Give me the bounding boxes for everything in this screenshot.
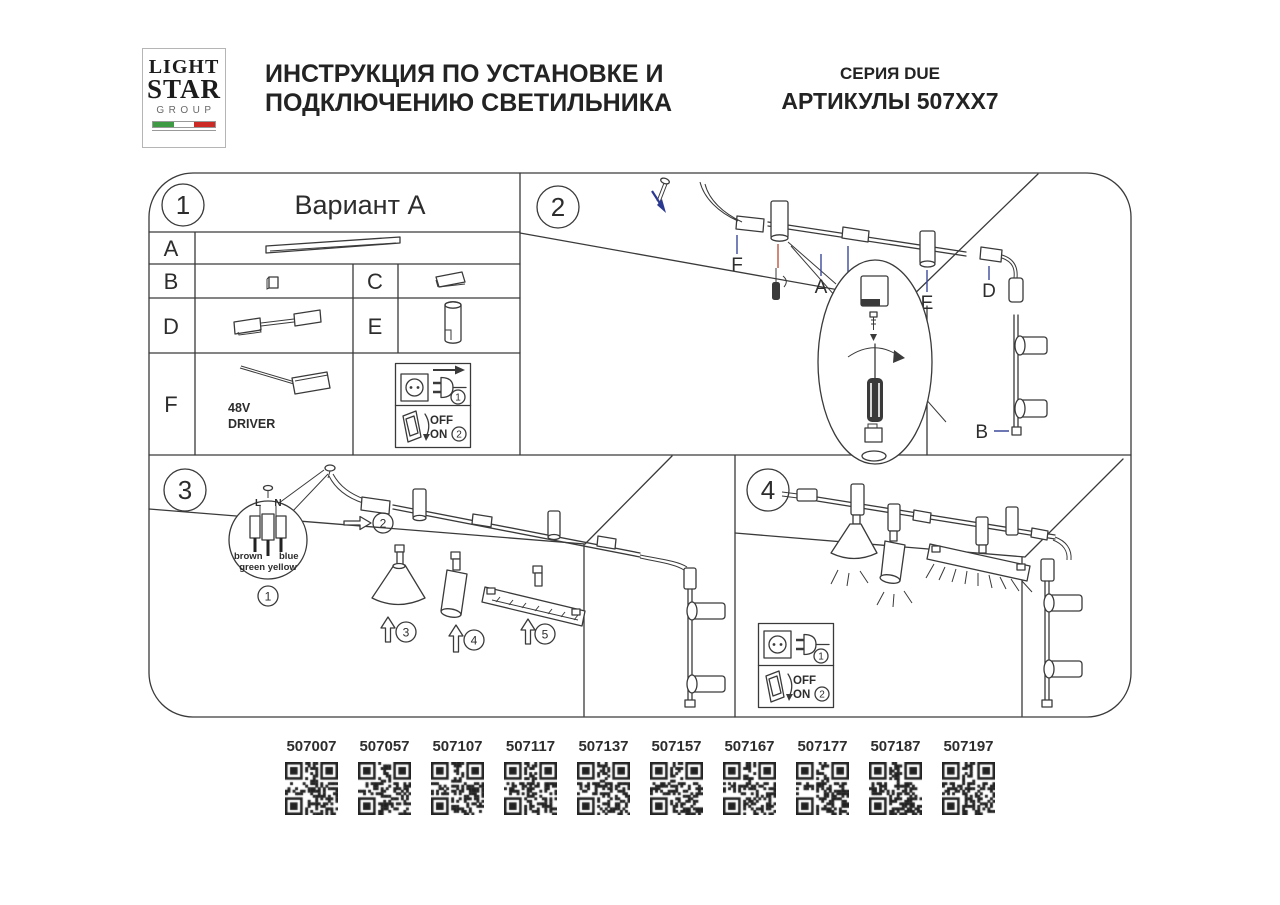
svg-text:1: 1 — [455, 393, 461, 404]
page-title-line1: ИНСТРУКЦИЯ ПО УСТАНОВКЕ И — [265, 60, 705, 89]
articles-row: 5070075070575071075071175071375071575071… — [148, 738, 1132, 815]
svg-text:1: 1 — [818, 652, 824, 663]
track-mount-2-3 — [548, 511, 560, 540]
svg-text:4: 4 — [471, 634, 478, 648]
socket-icon — [401, 374, 428, 401]
row-label-c: C — [367, 269, 383, 294]
wire-brown-label: brown — [234, 551, 263, 562]
flag-green-segment — [153, 122, 174, 127]
wall-spot-4b — [1044, 660, 1082, 678]
row-label-b: B — [164, 269, 179, 294]
article-code-label: 507137 — [567, 738, 640, 755]
step-4-badge: 4 — [747, 469, 789, 511]
article-item: 507117 — [494, 738, 567, 815]
logo-text-star: STAR — [143, 77, 225, 102]
variant-title: Вариант А — [295, 190, 426, 220]
track-mount-cylinder-2 — [920, 231, 935, 267]
qr-code — [358, 762, 411, 815]
plug-icon-4 — [796, 635, 829, 655]
label-a: A — [815, 277, 828, 298]
part-c-connector-icon — [436, 272, 465, 287]
row-label-a: A — [164, 236, 179, 261]
part-d-flex-connector-icon — [234, 310, 321, 335]
track-mount-1-3 — [413, 489, 426, 521]
track-mounts-4 — [851, 484, 1048, 545]
label-d: D — [982, 281, 996, 302]
qr-code — [723, 762, 776, 815]
plug-icon — [433, 378, 466, 398]
part-b-mount-square-icon — [267, 277, 278, 289]
track-connector-f — [736, 216, 764, 232]
step-3-badge: 3 — [164, 469, 206, 511]
wall-track-assembly — [980, 247, 1047, 435]
svg-text:2: 2 — [380, 517, 387, 531]
svg-text:3: 3 — [403, 626, 410, 640]
section-3-wiring: 3 — [149, 456, 725, 716]
series-label: СЕРИЯ DUE — [770, 64, 1010, 84]
part-f-driver-icon: 48V DRIVER — [228, 366, 330, 431]
step-circle-4-2: 2 — [815, 687, 829, 701]
wire-l-label: L — [255, 498, 261, 509]
label-b: B — [975, 422, 988, 443]
off-label-1: OFF — [430, 415, 453, 427]
article-code-label: 507107 — [421, 738, 494, 755]
step-2-badge: 2 — [537, 186, 579, 228]
article-item: 507197 — [932, 738, 1005, 815]
flag-red-segment — [194, 122, 215, 127]
article-item: 507137 — [567, 738, 640, 815]
article-item: 507057 — [348, 738, 421, 815]
up-arrow-3-icon — [381, 617, 395, 642]
wall-track-3 — [640, 555, 725, 707]
switch-icon-4 — [766, 671, 793, 702]
wall-end-square-b — [1012, 427, 1021, 435]
step-circle-3-2: 2 — [373, 513, 393, 533]
driver-voltage-label: 48V — [228, 401, 251, 415]
step-circle-3-5: 5 — [535, 624, 555, 644]
wall-spot-2 — [1015, 399, 1047, 418]
wall-spot-3a — [687, 602, 725, 620]
step-circle-3-4: 4 — [464, 630, 484, 650]
row-label-f: F — [164, 392, 177, 417]
end-cap — [862, 451, 886, 461]
step-circle-2: 2 — [452, 427, 466, 441]
small-screwdriver-icon — [772, 268, 786, 300]
off-label-4: OFF — [793, 675, 816, 687]
part-a-track-rail-icon — [266, 237, 400, 253]
wall-spot-3b — [687, 675, 725, 693]
driver-name-label: DRIVER — [228, 417, 275, 431]
svg-text:5: 5 — [542, 628, 549, 642]
article-code-label: 507177 — [786, 738, 859, 755]
supply-cable-3 — [329, 474, 364, 503]
articles-title: АРТИКУЛЫ 507XX7 — [760, 88, 1020, 115]
wire-n-label: N — [274, 498, 281, 509]
qr-code — [942, 762, 995, 815]
step-circle-3-3: 3 — [396, 622, 416, 642]
page-title: ИНСТРУКЦИЯ ПО УСТАНОВКЕ И ПОДКЛЮЧЕНИЮ СВ… — [265, 60, 705, 118]
qr-code — [650, 762, 703, 815]
article-code-label: 507167 — [713, 738, 786, 755]
svg-text:2: 2 — [456, 430, 462, 441]
lit-linear-bar — [926, 544, 1032, 592]
end-piece — [865, 428, 882, 442]
switch-icon — [403, 411, 430, 442]
cylinder-spot-lamp — [440, 552, 467, 619]
svg-text:2: 2 — [819, 690, 825, 701]
cone-lamp — [372, 545, 425, 605]
row-label-d: D — [163, 314, 179, 339]
qr-code — [577, 762, 630, 815]
article-code-label: 507057 — [348, 738, 421, 755]
page-title-line2: ПОДКЛЮЧЕНИЮ СВЕТИЛЬНИКА — [265, 89, 705, 118]
supply-cable — [700, 182, 742, 222]
article-code-label: 507007 — [275, 738, 348, 755]
lit-cone-lamp — [831, 515, 877, 586]
linear-bar-lamp — [482, 566, 585, 626]
article-code-label: 507117 — [494, 738, 567, 755]
section-2-mounting: 2 — [520, 174, 1047, 464]
svg-text:2: 2 — [551, 192, 565, 222]
lightstar-logo: LIGHT STAR GROUP — [142, 48, 226, 148]
track-connector-f-3 — [361, 497, 390, 514]
socket-icon-4 — [764, 631, 791, 658]
track-mount-cylinder-1 — [771, 201, 788, 241]
screw-direction-arrow-icon — [652, 191, 666, 213]
step-circle-1: 1 — [451, 390, 465, 404]
slide-arrow-icon — [344, 517, 371, 530]
svg-text:1: 1 — [265, 590, 272, 604]
article-code-label: 507157 — [640, 738, 713, 755]
wall-spot-1 — [1015, 336, 1047, 355]
unplug-arrow-icon — [433, 366, 465, 375]
article-code-label: 507197 — [932, 738, 1005, 755]
up-arrow-4-icon — [449, 625, 463, 652]
power-instruction-box-4: 1 OFF ON 2 — [759, 624, 834, 708]
diagram-panel: 1 Вариант А A B C D E F — [148, 172, 1132, 718]
ceiling-screw-icon — [657, 177, 670, 202]
row-label-e: E — [368, 314, 383, 339]
article-item: 507007 — [275, 738, 348, 815]
wall-spot-4a — [1044, 594, 1082, 612]
power-instruction-box-1: 1 OFF ON 2 — [396, 364, 471, 448]
step-1-badge: 1 — [162, 184, 204, 226]
flag-white-segment — [174, 122, 195, 127]
article-item: 507157 — [640, 738, 713, 815]
article-item: 507187 — [859, 738, 932, 815]
qr-code — [504, 762, 557, 815]
svg-text:4: 4 — [761, 475, 775, 505]
article-code-label: 507187 — [859, 738, 932, 755]
on-label-4: ON — [793, 689, 810, 701]
wire-blue-label: blue — [279, 551, 299, 562]
article-item: 507177 — [786, 738, 859, 815]
italian-flag-icon — [152, 121, 216, 128]
diagram-svg: 1 Вариант А A B C D E F — [148, 172, 1132, 718]
part-e-cylinder-icon — [445, 302, 461, 343]
section-1-parts-table: 1 Вариант А A B C D E F — [149, 184, 520, 455]
qr-code — [869, 762, 922, 815]
step-circle-4-1: 1 — [814, 649, 828, 663]
label-f: F — [731, 255, 743, 276]
article-item: 507107 — [421, 738, 494, 815]
section-4-finished: 4 — [735, 459, 1123, 716]
on-label-1: ON — [430, 429, 447, 441]
wire-green-yellow-label: green yellow — [239, 562, 297, 573]
article-item: 507167 — [713, 738, 786, 815]
svg-text:3: 3 — [178, 475, 192, 505]
track-connector-c — [842, 227, 869, 242]
wall-track-4 — [1041, 537, 1082, 707]
instruction-sheet: LIGHT STAR GROUP ИНСТРУКЦИЯ ПО УСТАНОВКЕ… — [0, 0, 1280, 905]
up-arrow-5-icon — [521, 619, 535, 644]
corner-connector-d — [980, 247, 1002, 262]
qr-code — [796, 762, 849, 815]
qr-code — [431, 762, 484, 815]
svg-text:1: 1 — [176, 190, 190, 220]
lit-cylinder-spot — [877, 531, 912, 607]
logo-text-group: GROUP — [143, 105, 225, 116]
magnifier-detail — [818, 260, 932, 464]
step-circle-3-1: 1 — [258, 586, 278, 606]
qr-code — [285, 762, 338, 815]
wiring-detail-circle: L N brown blue green yellow — [229, 486, 307, 580]
flag-underline — [152, 130, 216, 131]
